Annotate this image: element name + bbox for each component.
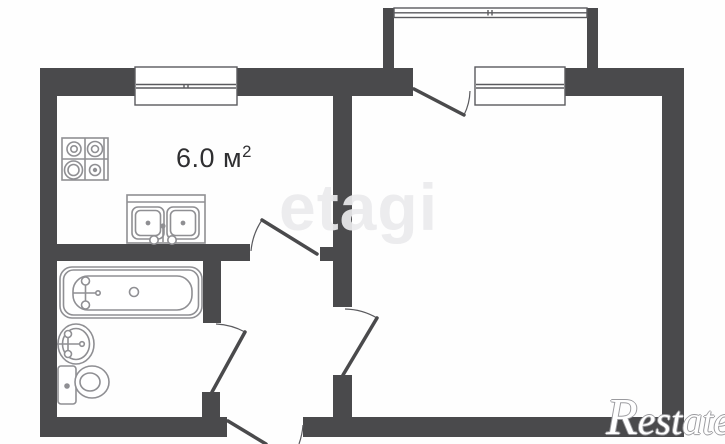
- bathtub: [60, 267, 202, 318]
- entrance-door: [228, 421, 266, 444]
- wall-middle-vertical-stub: [333, 375, 352, 417]
- balcony-door: [414, 89, 464, 115]
- wall-left: [40, 68, 57, 437]
- kitchen-area-exponent: 2: [242, 142, 252, 161]
- wall-kitchen-bottom: [57, 244, 250, 261]
- wall-right: [662, 68, 684, 437]
- kitchen-door-arc: [251, 220, 262, 251]
- balcony-door-arc: [464, 91, 470, 115]
- bathroom-door: [212, 332, 245, 392]
- wall-bottom-left-segment: [40, 417, 227, 437]
- room-window: [475, 67, 565, 105]
- kitchen-window: [135, 67, 237, 105]
- wall-bathroom-right-stub: [202, 392, 220, 417]
- wall-bathroom-right: [203, 261, 221, 323]
- wall-top-middle-segment: [237, 68, 413, 96]
- washbasin: [57, 324, 94, 364]
- kitchen-area-value: 6.0 м: [176, 143, 242, 173]
- balcony-window: [394, 8, 587, 18]
- room-door-arc: [345, 309, 377, 318]
- floorplan-drawing: [0, 0, 725, 444]
- stove: [62, 138, 108, 180]
- toilet: [58, 366, 109, 404]
- kitchen-sink: [127, 195, 205, 244]
- balcony-post-left: [383, 8, 394, 68]
- kitchen-area-label: 6.0 м2: [176, 142, 252, 174]
- wall-bottom-right-segment: [303, 417, 684, 437]
- fixtures: [57, 138, 205, 404]
- wall-kitchen-bottom-nub: [320, 247, 333, 261]
- entrance-door-arc: [299, 425, 303, 444]
- wall-middle-vertical: [333, 96, 352, 307]
- bathroom-door-arc: [216, 324, 245, 332]
- kitchen-door: [262, 220, 317, 254]
- floorplan-canvas: etagi 6.0 м2 Restate: [0, 0, 725, 444]
- room-door: [343, 318, 377, 375]
- balcony-post-right: [587, 8, 598, 68]
